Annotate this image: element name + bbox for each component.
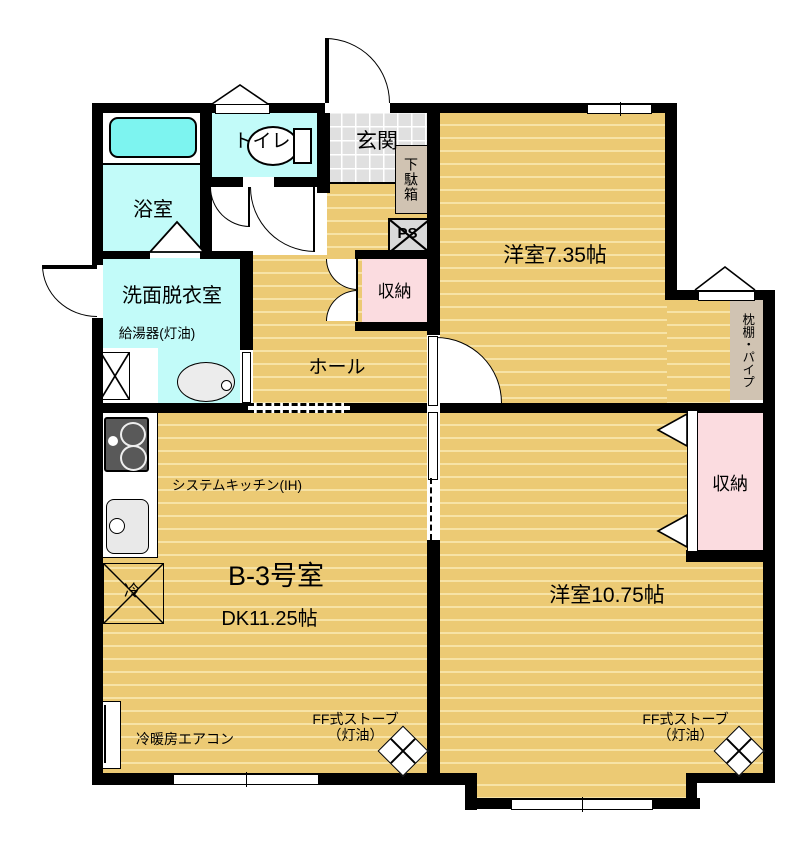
wall-central-lower [427, 540, 440, 785]
wall-bottom-right [686, 773, 775, 783]
shoe-cabinet-label: 下駄箱 [397, 148, 425, 210]
unit-name-label: B-3号室 [202, 560, 350, 594]
storage-right-label: 収納 [698, 472, 762, 496]
ff-stove-fuel: （灯油） [328, 727, 384, 743]
wall-hall-west1 [427, 103, 440, 335]
aircon-unit [100, 701, 121, 769]
system-kitchen-label: システムキッチン(IH) [159, 477, 315, 494]
ff-stove-fuel: （灯油） [658, 727, 714, 743]
bath-folding-door [148, 220, 206, 255]
bathtub [109, 117, 197, 158]
water-heater-unit [100, 352, 130, 400]
western-room-1-label: 洋室7.35帖 [490, 243, 620, 270]
storage-upper-label: 収納 [363, 281, 426, 303]
kitchen-sink [106, 499, 149, 554]
window-mullion [246, 772, 247, 787]
wall-mid-right [437, 403, 775, 413]
entrance-door-swing [325, 38, 390, 103]
dk-window [173, 774, 319, 785]
wall-storage-upper-bottom [355, 322, 427, 331]
washroom-label: 洗面脱衣室 [103, 283, 241, 310]
ff-stove-west2-label: FF式ストーブ （灯油） [628, 707, 743, 747]
shelf-closet-peak [694, 266, 757, 292]
west1-window [587, 104, 652, 114]
wall-storage-right-bottom [686, 550, 775, 562]
pipe-space-label: PS [388, 223, 427, 245]
window-mullion [620, 102, 621, 116]
toilet-label: トイレ [212, 129, 312, 155]
washbasin-drain [221, 380, 232, 391]
hall-label: ホール [298, 356, 376, 379]
hall-dk-opening [248, 403, 350, 413]
entrance-opening [325, 103, 390, 113]
washroom-exterior-door-swing [42, 265, 97, 317]
aircon-label: 冷暖房エアコン [125, 730, 245, 749]
bay-floor [477, 773, 686, 798]
window-mullion [582, 797, 583, 812]
aircon-line [104, 705, 106, 763]
burner [120, 422, 146, 447]
wall-washroom-top-l [92, 251, 150, 259]
burner [120, 445, 147, 471]
washroom-sliding-door [242, 352, 251, 403]
stove-knob [108, 436, 118, 446]
wall-storage-upper-top [355, 250, 427, 259]
wall-right-lower [763, 290, 775, 783]
western-room-1-floor-ext [667, 300, 730, 403]
toilet-window-peak [211, 84, 270, 106]
ff-stove-name: FF式ストーブ [642, 711, 728, 727]
west1-door-leaf [428, 336, 438, 406]
unit-size-label: DK11.25帖 [207, 606, 332, 632]
storage-right-folding-door-bottom [656, 513, 689, 549]
ff-stove-name: FF式ストーブ [312, 711, 398, 727]
ih-stove [104, 417, 149, 472]
dk-west2-sliding-door [428, 412, 438, 480]
toilet-door-opening [243, 177, 274, 187]
ff-stove-dk-label: FF式ストーブ （灯油） [298, 707, 413, 747]
sliding-track-dashed [430, 478, 437, 540]
storage-right-folding-door-top [656, 412, 689, 448]
shelf-pipe-label: 枕棚・パイプ [733, 302, 761, 399]
wall-left [92, 103, 103, 785]
bay-window [511, 799, 653, 810]
floor-plan: 浴室 トイレ 玄関 下駄箱 PS 収納 洗面脱衣室 給湯器(灯油) ホール 洋室… [0, 0, 805, 850]
refrigerator-label: 冷 [118, 582, 146, 602]
shelf-closet-opening [698, 291, 755, 301]
wall-right-upper [665, 103, 677, 300]
water-heater-label: 給湯器(灯油) [101, 325, 213, 342]
western-room-2-label: 洋室10.75帖 [537, 583, 677, 609]
bath-label: 浴室 [103, 196, 203, 224]
sink-drain [109, 518, 125, 534]
